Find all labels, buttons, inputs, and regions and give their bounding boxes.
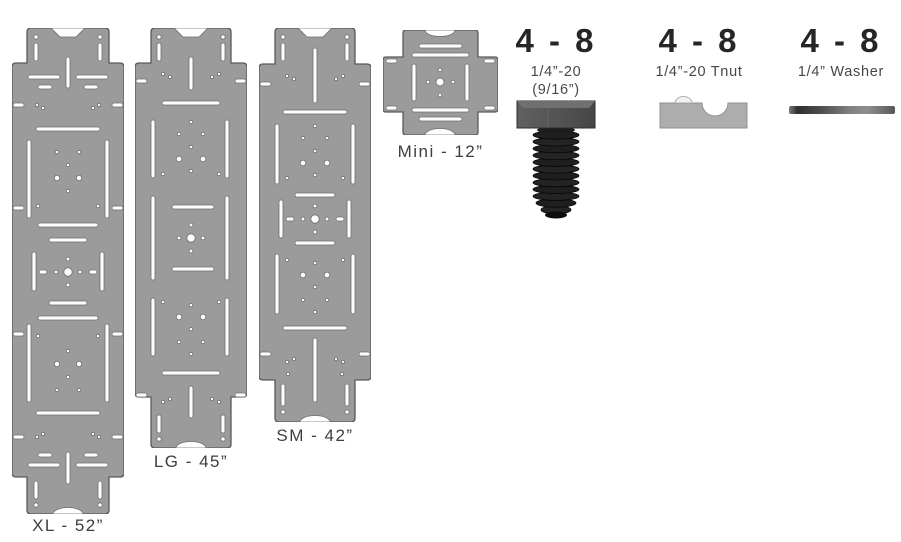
plate-sm-label: SM - 42” [259,426,371,446]
bolt-name: 1/4”-20 (9/16”) [496,63,616,99]
washer-column: 4 - 8 1/4” Washer [781,24,901,81]
bolt-icon [514,99,598,223]
plate-sm [259,28,371,422]
plate-mini-graphic [383,30,498,135]
bolt-column: 4 - 8 1/4”-20 (9/16”) [496,24,616,99]
parts-diagram: XL - 52” LG - 45” SM - 42” Mini - 12” 4 … [0,0,901,542]
washer-icon [789,106,895,114]
washer-name: 1/4” Washer [781,63,901,81]
washer-quantity: 4 - 8 [781,24,901,58]
tnut-quantity: 4 - 8 [639,24,759,58]
plate-lg [135,28,247,448]
plate-sm-graphic [259,28,371,422]
plate-xl [12,28,124,514]
tnut-icon [656,90,750,132]
tnut-column: 4 - 8 1/4”-20 Tnut [639,24,759,81]
tnut-name: 1/4”-20 Tnut [639,63,759,81]
bolt-quantity: 4 - 8 [496,24,616,58]
plate-mini-label: Mini - 12” [383,142,498,162]
plate-xl-label: XL - 52” [12,516,124,536]
plate-lg-graphic [135,28,247,448]
plate-mini [383,30,498,135]
plate-xl-graphic [12,28,124,514]
plate-lg-label: LG - 45” [135,452,247,472]
